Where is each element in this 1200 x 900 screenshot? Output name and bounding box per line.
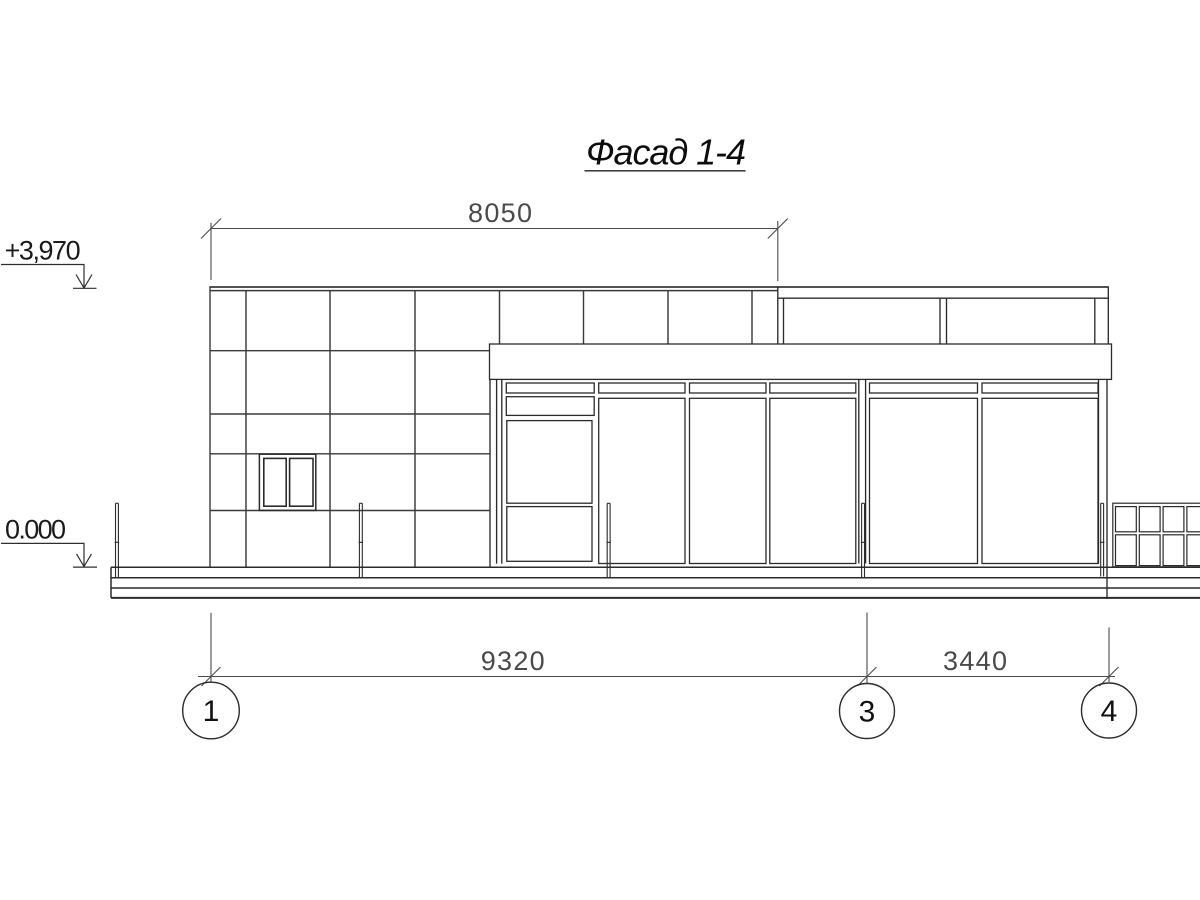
svg-text:3440: 3440 [943, 646, 1007, 676]
svg-text:3: 3 [859, 696, 876, 729]
svg-text:0.000: 0.000 [5, 515, 66, 545]
svg-text:1: 1 [203, 695, 220, 728]
svg-text:4: 4 [1101, 695, 1118, 728]
svg-text:Фасад 1-4: Фасад 1-4 [586, 132, 746, 173]
svg-text:8050: 8050 [468, 198, 532, 228]
svg-text:+3,970: +3,970 [5, 236, 81, 266]
svg-text:9320: 9320 [481, 646, 545, 676]
